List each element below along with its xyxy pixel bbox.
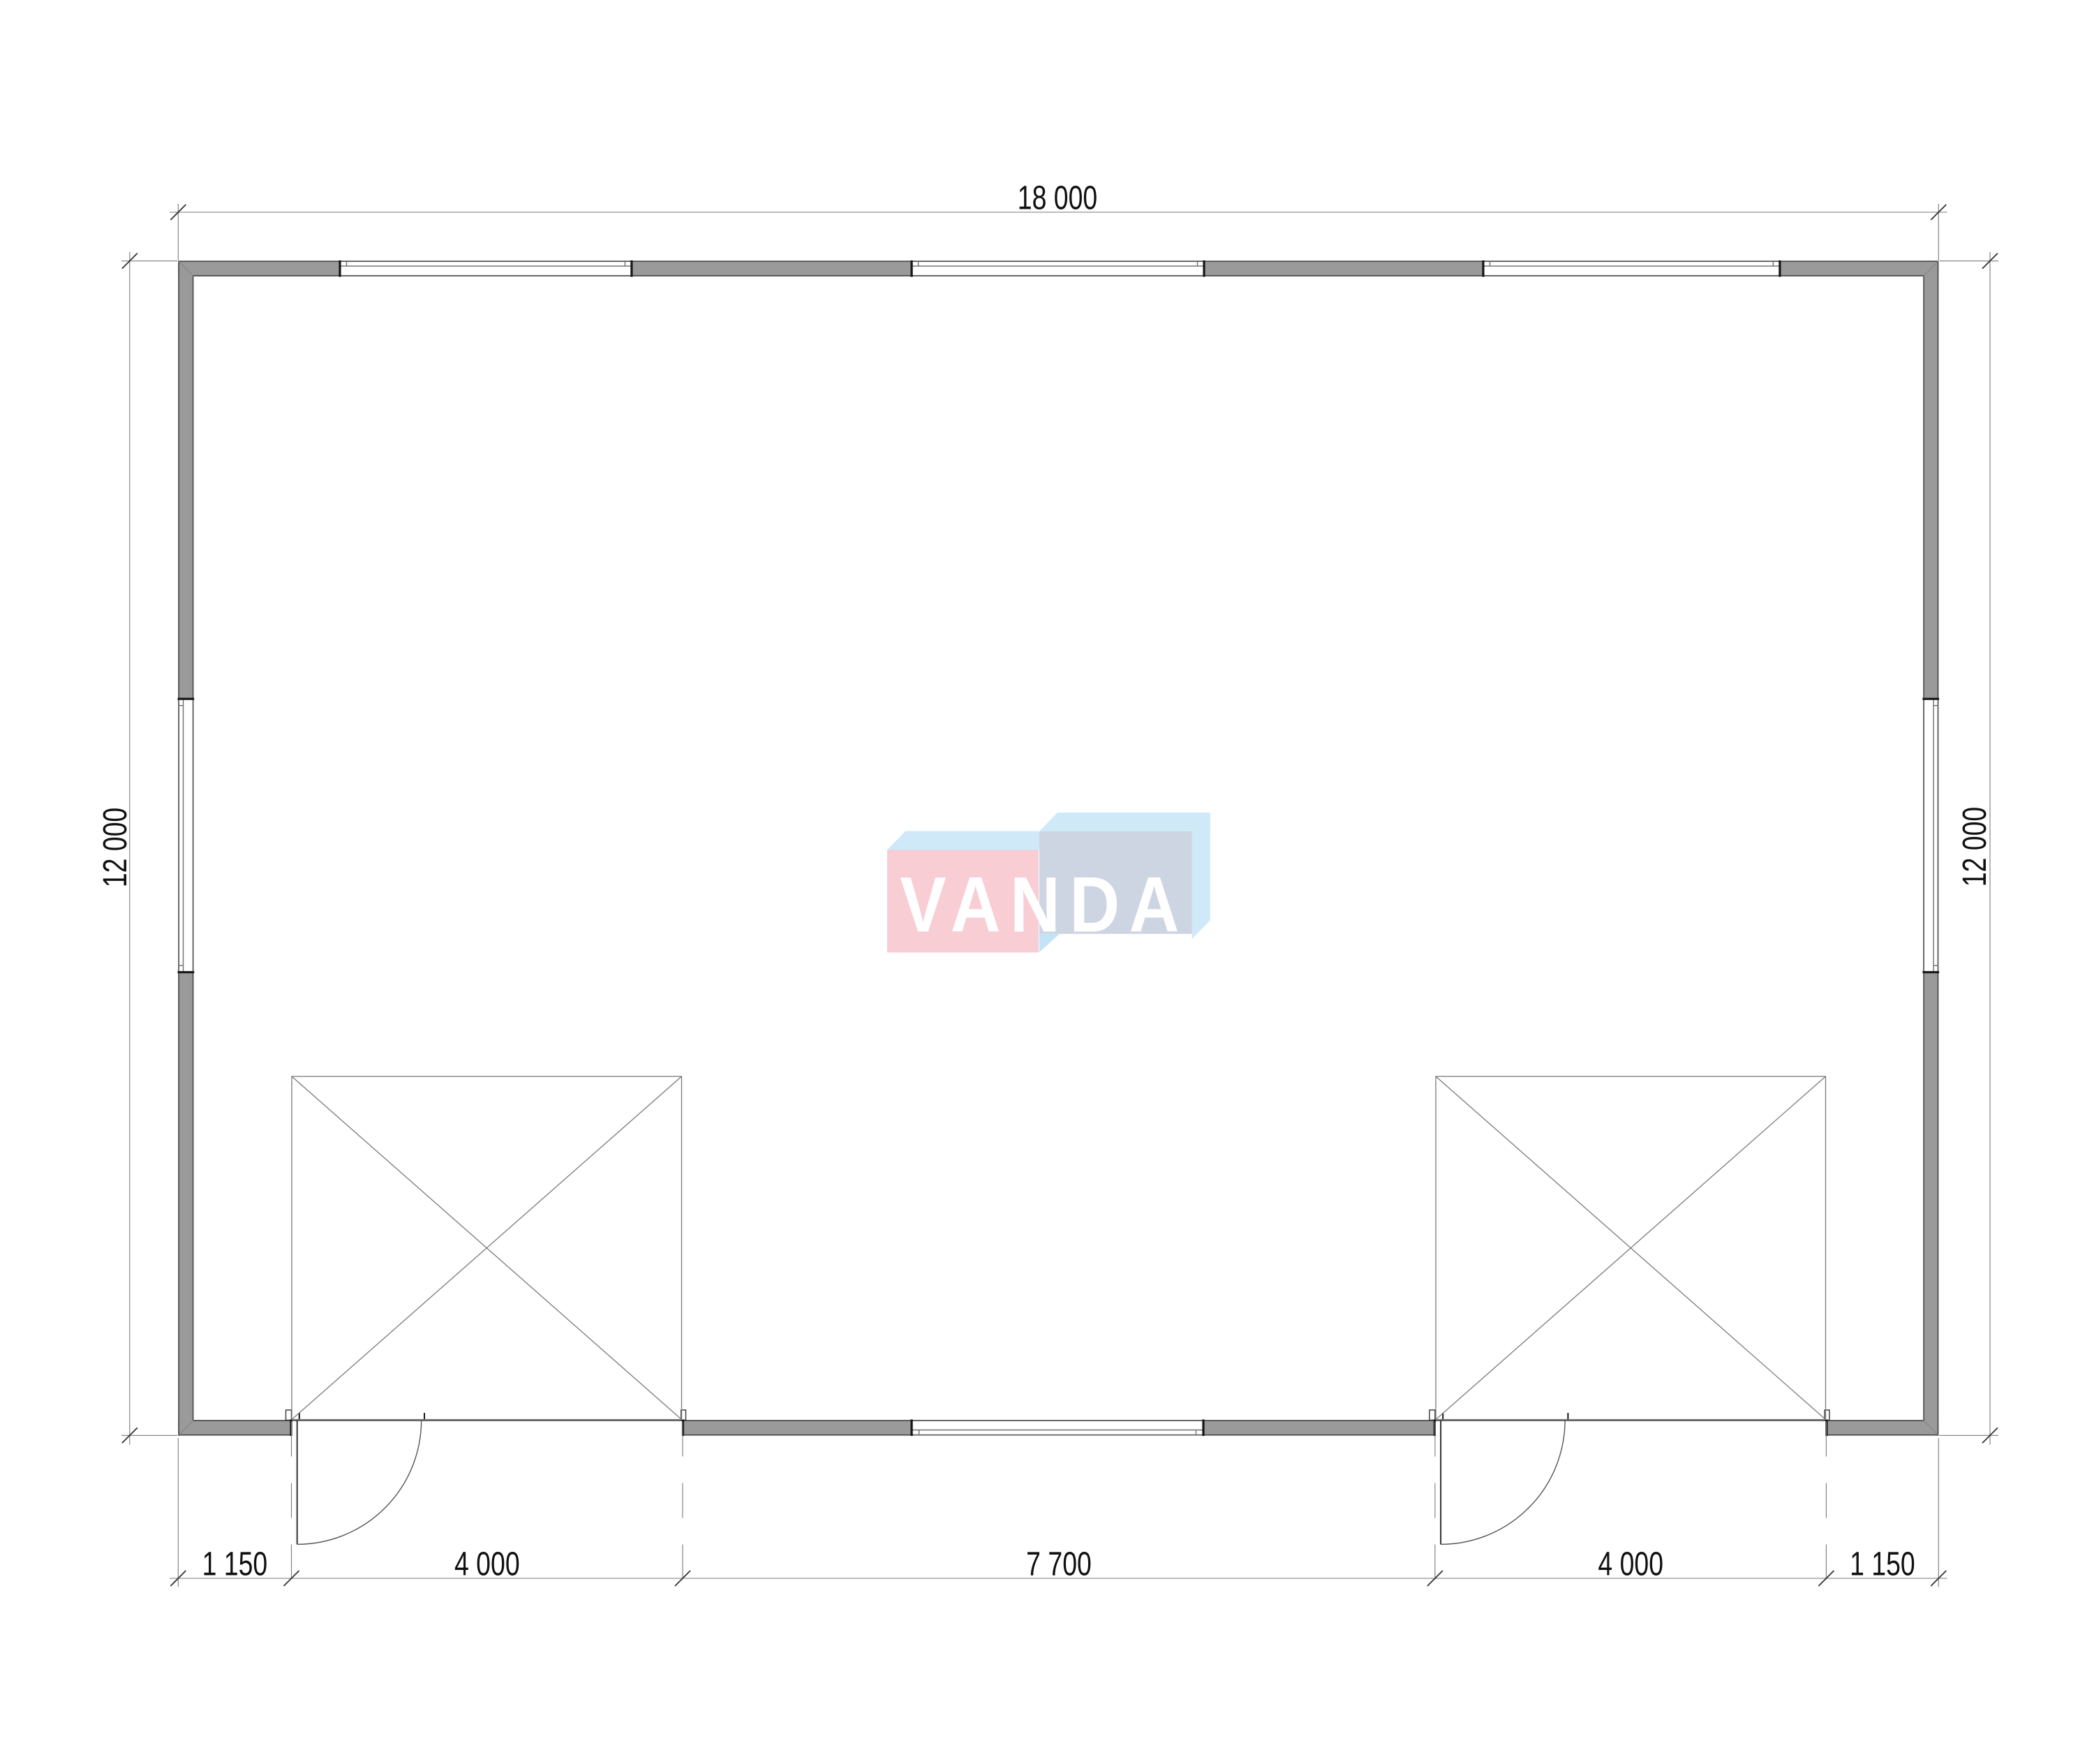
svg-text:1 150: 1 150: [1850, 1546, 1915, 1583]
svg-text:12 000: 12 000: [1956, 807, 1994, 887]
svg-text:1 150: 1 150: [202, 1546, 268, 1583]
svg-text:4 000: 4 000: [1598, 1546, 1663, 1583]
svg-text:VANDA: VANDA: [900, 861, 1189, 949]
svg-text:12 000: 12 000: [97, 808, 135, 887]
svg-text:7 700: 7 700: [1026, 1546, 1092, 1583]
svg-text:4 000: 4 000: [454, 1546, 520, 1583]
svg-text:18 000: 18 000: [1018, 179, 1097, 217]
